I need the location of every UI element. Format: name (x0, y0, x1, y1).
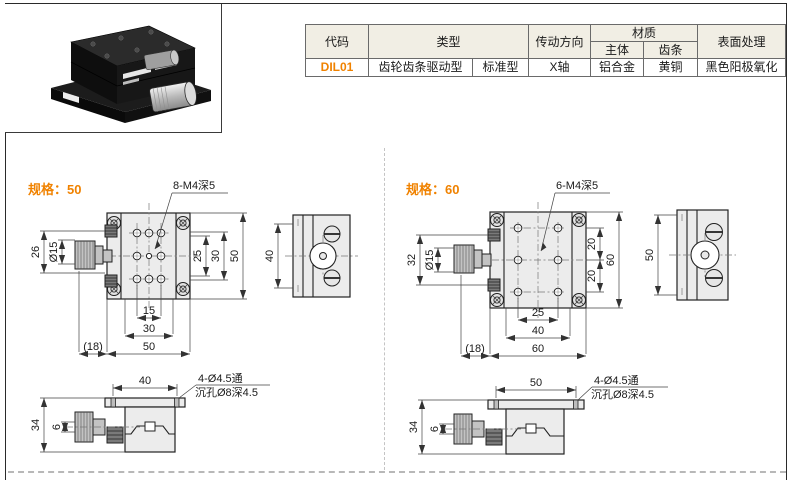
col-header-type: 类型 (369, 25, 529, 59)
dim-label: 50 (644, 249, 656, 261)
knob-bottom (454, 414, 502, 445)
cell-direction: X轴 (529, 59, 591, 77)
knob-plan (75, 225, 117, 287)
dim-label: 60 (532, 343, 544, 355)
cell-code: DIL01 (306, 59, 369, 77)
through-hole-label: 4-Ø4.5通 (594, 374, 639, 387)
dim-label: 50 (229, 250, 241, 262)
col-header-material-rack: 齿条 (644, 42, 698, 59)
spec60-bottom-view: 34 6 50 4-Ø4.5通 沉孔Ø8深4.5 (408, 374, 668, 454)
counterbore-label: 沉孔Ø8深4.5 (591, 388, 654, 401)
cell-material-rack: 黄铜 (644, 59, 698, 77)
dim-label: 6 (51, 424, 63, 430)
spec-table: 代码 类型 传动方向 材质 表面处理 主体 齿条 DIL01 齿轮齿条驱动型 标… (305, 24, 786, 77)
col-header-code: 代码 (306, 25, 369, 59)
catalog-page: 代码 类型 传动方向 材质 表面处理 主体 齿条 DIL01 齿轮齿条驱动型 标… (0, 0, 800, 480)
dim-label: 50 (530, 377, 542, 389)
dim-label: Ø15 (424, 250, 436, 271)
cell-material-body: 铝合金 (591, 59, 644, 77)
product-photo-box (5, 4, 222, 133)
dim-label: 40 (139, 375, 151, 387)
dim-label: (18) (465, 343, 485, 355)
dim-label: 15 (143, 305, 155, 317)
cell-type-main: 齿轮齿条驱动型 (369, 59, 473, 77)
counterbore-label: 沉孔Ø8深4.5 (195, 386, 258, 399)
hole-callout-label: 8-M4深5 (173, 179, 215, 192)
knob-bottom (75, 412, 123, 443)
dim-label: 50 (143, 341, 155, 353)
cell-type-sub: 标准型 (473, 59, 529, 77)
spec50-bottom-view: 34 6 40 4-Ø4.5通 沉孔Ø8深4.5 (30, 372, 270, 452)
dim-label: 34 (408, 421, 420, 433)
spec50-side-view: 40 (264, 215, 358, 297)
spec60-plan-view (454, 202, 590, 318)
dim-label: 20 (586, 238, 598, 250)
dim-label: 32 (406, 254, 418, 266)
cell-surface: 黑色阳极氧化 (698, 59, 786, 77)
dim-label: 20 (586, 270, 598, 282)
drawing-spec-50: 26 Ø15 25 30 50 15 30 50 (18) 8-M4深5 (10, 175, 388, 475)
through-hole-label: 4-Ø4.5通 (198, 372, 243, 385)
spec50-plan-view (75, 203, 202, 309)
col-header-direction: 传动方向 (529, 25, 591, 59)
dim-label: 25 (532, 307, 544, 319)
dim-label: (18) (83, 341, 103, 353)
table-row: DIL01 齿轮齿条驱动型 标准型 X轴 铝合金 黄铜 黑色阳极氧化 (306, 59, 786, 77)
dim-label: 60 (605, 254, 617, 266)
col-header-surface: 表面处理 (698, 25, 786, 59)
col-header-material: 材质 (591, 25, 698, 42)
dim-label: 25 (192, 250, 204, 262)
drawing-spec-60: 32 Ø15 20 20 60 25 40 60 (18) 6-M4深5 (388, 175, 793, 475)
dim-label: 30 (143, 323, 155, 335)
spec60-side-view: 50 (644, 210, 736, 300)
dim-label: 26 (30, 246, 42, 258)
col-header-material-body: 主体 (591, 42, 644, 59)
dim-label: 40 (532, 325, 544, 337)
dim-label: Ø15 (48, 242, 60, 263)
product-photo (5, 4, 220, 131)
dim-label: 40 (264, 250, 276, 262)
dim-label: 6 (429, 426, 441, 432)
dim-label: 34 (30, 419, 42, 431)
dim-label: 30 (210, 250, 222, 262)
hole-callout-label: 6-M4深5 (556, 179, 598, 192)
